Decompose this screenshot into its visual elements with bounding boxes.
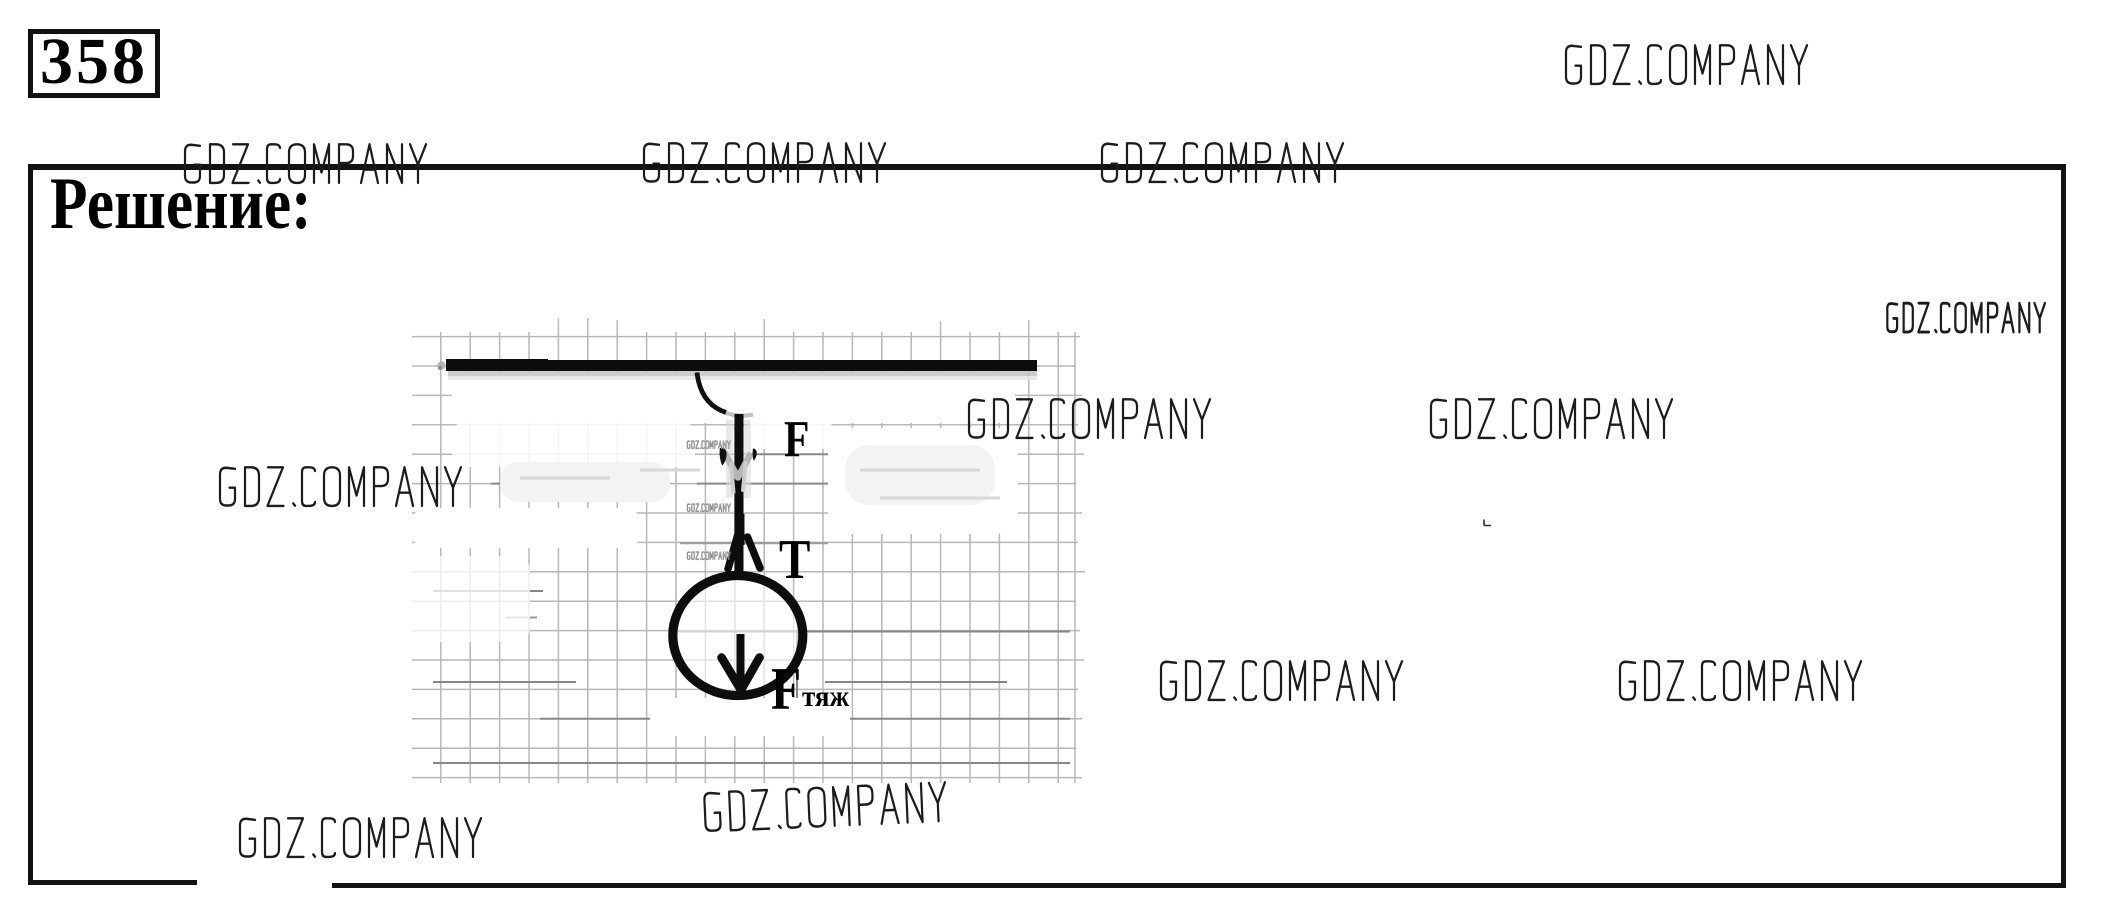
svg-text:T: T	[779, 529, 810, 591]
svg-text:F: F	[784, 411, 809, 468]
svg-text:тяж: тяж	[802, 681, 849, 714]
svg-text:F: F	[771, 655, 801, 722]
